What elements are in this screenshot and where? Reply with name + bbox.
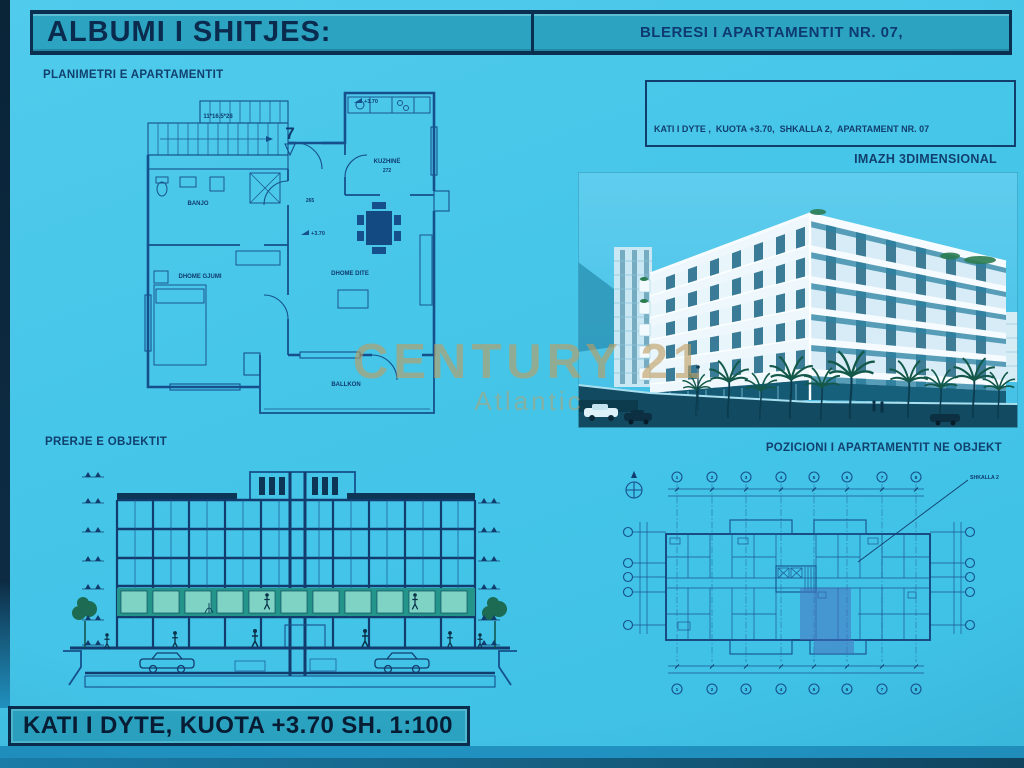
render-3d-label: IMAZH 3DIMENSIONAL bbox=[817, 152, 997, 166]
highlighted-floor bbox=[117, 588, 475, 616]
room-label-balcony: BALLKON bbox=[331, 382, 360, 388]
svg-text:4: 4 bbox=[780, 475, 783, 481]
grid-bubbles-top: 1 2 3 4 5 6 7 8 bbox=[672, 472, 921, 482]
dim-hall: 265 bbox=[306, 198, 315, 204]
svg-text:5: 5 bbox=[813, 475, 816, 481]
hatched-wall-entry bbox=[148, 155, 288, 169]
inner-walls bbox=[148, 143, 434, 355]
section-view-label: PRERJE E OBJEKTIT bbox=[45, 436, 167, 448]
render-3d-image bbox=[578, 172, 1018, 428]
info-line-1: KATI I DYTE , KUOTA +3.70, SHKALLA 2, AP… bbox=[654, 123, 1007, 137]
svg-text:SHKALLA 2: SHKALLA 2 bbox=[970, 475, 999, 481]
bedroom-furniture bbox=[154, 251, 280, 365]
page-left-edge bbox=[0, 0, 10, 708]
bathroom-fixtures bbox=[156, 173, 280, 203]
grid-bubbles-bottom: 1 2 3 4 5 6 7 8 bbox=[672, 684, 921, 694]
svg-text:1: 1 bbox=[676, 475, 679, 481]
svg-text:6: 6 bbox=[846, 687, 849, 693]
dim-kitchen: 272 bbox=[383, 168, 392, 174]
ground-floor bbox=[172, 625, 453, 648]
svg-text:8: 8 bbox=[915, 687, 918, 693]
building-floor-outline bbox=[666, 520, 930, 654]
svg-text:+3.70: +3.70 bbox=[311, 231, 325, 237]
hatched-pier-right bbox=[434, 191, 449, 211]
room-label-bedroom: DHOME GJUMI bbox=[178, 274, 221, 280]
svg-text:3: 3 bbox=[745, 475, 748, 481]
apartment-info-box: KATI I DYTE , KUOTA +3.70, SHKALLA 2, AP… bbox=[645, 80, 1016, 147]
stair-dimension: 11*16.5*28 bbox=[203, 114, 233, 120]
bottom-photo-edge bbox=[0, 758, 1024, 768]
position-plan-label: POZICIONI I APARTAMENTIT NE OBJEKT bbox=[740, 442, 1002, 454]
sales-album-page: ALBUMI I SHITJES: BLERESI I APARTAMENTIT… bbox=[0, 0, 1024, 768]
svg-text:7: 7 bbox=[285, 124, 294, 143]
north-compass-icon bbox=[626, 471, 642, 498]
svg-text:2: 2 bbox=[711, 475, 714, 481]
penthouse bbox=[250, 472, 355, 500]
svg-text:4: 4 bbox=[780, 687, 783, 693]
footer-caption-band: KATI I DYTE, KUOTA +3.70 SH. 1:100 bbox=[8, 706, 470, 746]
building-section-drawing bbox=[55, 455, 525, 705]
floor-plan-drawing: 11*16.5*28 7 bbox=[140, 85, 450, 425]
svg-text:7: 7 bbox=[881, 475, 884, 481]
album-title-band: ALBUMI I SHITJES: bbox=[30, 10, 531, 55]
position-plan-drawing: 1 2 3 4 5 6 7 8 1 2 3 4 5 6 7 8 bbox=[618, 462, 1016, 705]
stair-callout: SHKALLA 2 bbox=[858, 475, 999, 562]
svg-text:2: 2 bbox=[711, 687, 714, 693]
background-building-left bbox=[614, 247, 652, 387]
apartment-number: 7 bbox=[285, 124, 295, 155]
dimension-lines bbox=[640, 488, 961, 674]
footer-caption: KATI I DYTE, KUOTA +3.70 SH. 1:100 bbox=[11, 712, 453, 740]
svg-text:5: 5 bbox=[813, 687, 816, 693]
room-label-kitchen: KUZHINË bbox=[374, 158, 401, 165]
svg-text:7: 7 bbox=[881, 687, 884, 693]
buyer-title: BLERESI I APARTAMENTIT NR. 07, bbox=[640, 24, 903, 41]
door-swings bbox=[264, 143, 397, 380]
elevation-flag-top: +3.70 bbox=[354, 98, 378, 105]
floor-plan-label: PLANIMETRI E APARTAMENTIT bbox=[43, 69, 223, 81]
room-label-living: DHOME DITE bbox=[331, 271, 369, 277]
album-title: ALBUMI I SHITJES: bbox=[33, 16, 331, 49]
pedestrian bbox=[880, 401, 883, 412]
hatched-pier-balcony bbox=[244, 353, 260, 375]
windows bbox=[145, 127, 437, 390]
svg-text:1: 1 bbox=[676, 687, 679, 693]
pedestrian bbox=[872, 400, 875, 411]
svg-text:3: 3 bbox=[745, 687, 748, 693]
svg-text:+3.70: +3.70 bbox=[364, 99, 378, 105]
elevation-flag-living: +3.70 bbox=[301, 230, 325, 237]
living-furniture bbox=[338, 202, 432, 308]
room-label-bath: BANJO bbox=[187, 201, 208, 207]
columns bbox=[117, 472, 475, 676]
bottom-photo-strip bbox=[0, 746, 1024, 758]
stairwell: 11*16.5*28 bbox=[148, 101, 288, 155]
highlighted-apartment bbox=[800, 588, 854, 654]
svg-text:8: 8 bbox=[915, 475, 918, 481]
svg-text:6: 6 bbox=[846, 475, 849, 481]
buyer-title-band: BLERESI I APARTAMENTIT NR. 07, bbox=[531, 10, 1012, 55]
